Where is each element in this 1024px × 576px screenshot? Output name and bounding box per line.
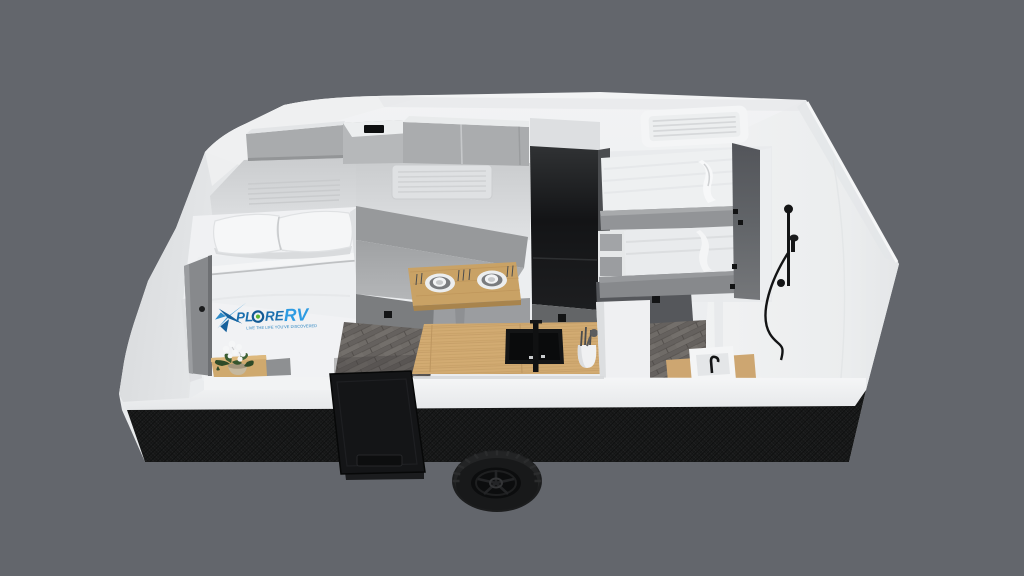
svg-text:RV: RV <box>284 304 310 325</box>
svg-text:PL: PL <box>236 309 254 325</box>
svg-text:RE: RE <box>265 308 285 324</box>
